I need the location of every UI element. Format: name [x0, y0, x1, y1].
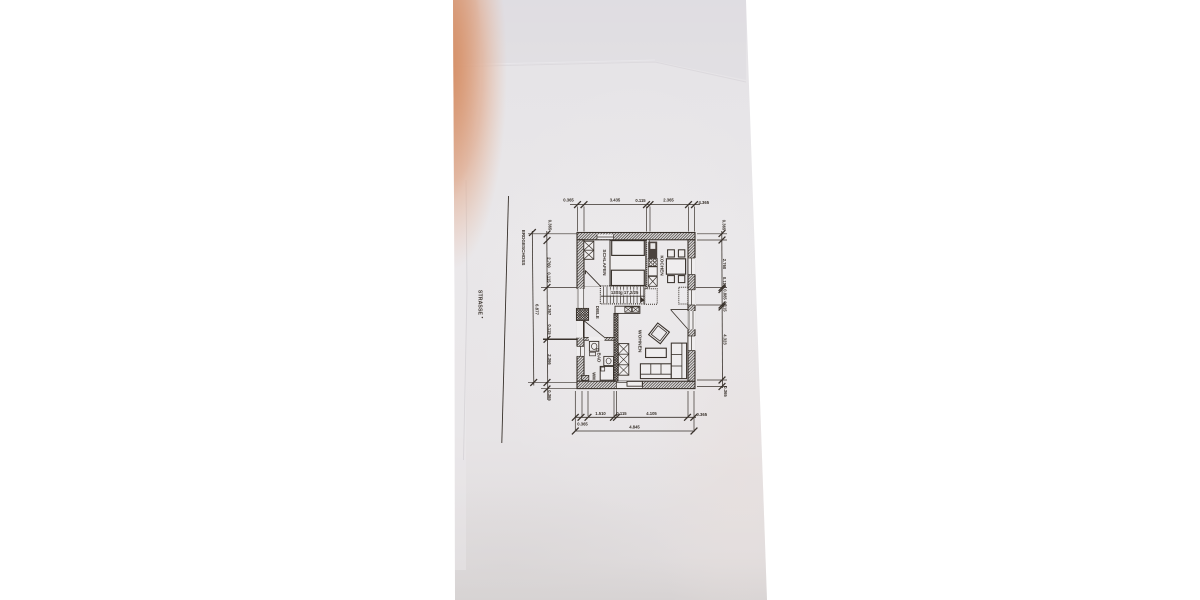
svg-text:3.435: 3.435: [610, 198, 621, 203]
svg-text:ERDGESCHOSS: ERDGESCHOSS: [521, 230, 526, 266]
svg-text:WOHNEN: WOHNEN: [637, 330, 643, 353]
svg-text:WM: WM: [592, 372, 597, 380]
svg-text:2.367: 2.367: [547, 305, 552, 316]
svg-text:0.365: 0.365: [547, 390, 552, 401]
svg-text:0.115: 0.115: [722, 301, 727, 312]
svg-text:0.365: 0.365: [548, 220, 553, 231]
svg-text:0.365: 0.365: [723, 386, 728, 397]
svg-text:4.365: 4.365: [699, 200, 710, 205]
svg-text:2.760: 2.760: [722, 259, 727, 270]
svg-text:4.323: 4.323: [723, 334, 728, 345]
svg-text:SCHLAFEN: SCHLAFEN: [601, 249, 607, 276]
svg-text:0.115: 0.115: [547, 324, 552, 335]
svg-text:0.115: 0.115: [547, 272, 552, 283]
svg-text:4.845: 4.845: [629, 425, 640, 430]
svg-text:2.366: 2.366: [547, 354, 552, 365]
svg-text:4.105: 4.105: [646, 411, 657, 416]
svg-text:KOCHEN: KOCHEN: [659, 255, 664, 276]
svg-text:0.365: 0.365: [721, 220, 726, 231]
svg-text:1.510: 1.510: [595, 411, 606, 416]
svg-text:2.760: 2.760: [547, 257, 552, 268]
svg-text:0.115: 0.115: [722, 277, 727, 288]
svg-text:2.365: 2.365: [663, 198, 674, 203]
svg-text:STRASSE: STRASSE: [477, 290, 483, 316]
svg-text:6.877: 6.877: [534, 304, 539, 316]
svg-text:BAD: BAD: [596, 353, 601, 363]
svg-text:0.365: 0.365: [577, 421, 588, 426]
svg-text:0.115: 0.115: [616, 411, 627, 416]
svg-text:0.115: 0.115: [635, 198, 646, 203]
svg-text:0.365: 0.365: [697, 412, 708, 417]
svg-text:0.365: 0.365: [563, 198, 574, 203]
svg-text:DIELE: DIELE: [595, 306, 600, 319]
svg-text:13Stg 17,2/25: 13Stg 17,2/25: [611, 290, 639, 295]
svg-text:0.885: 0.885: [722, 289, 727, 300]
